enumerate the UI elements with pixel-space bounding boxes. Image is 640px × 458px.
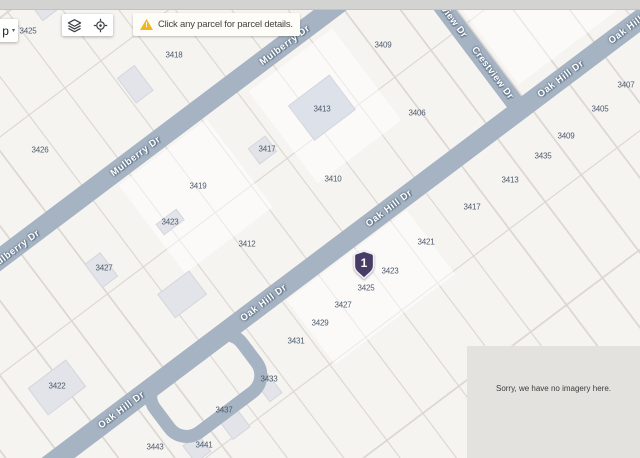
parcel-label-3417[interactable]: 3417 <box>464 203 481 212</box>
parcel-label-3425[interactable]: 3425 <box>20 27 37 36</box>
parcel-label-3419[interactable]: 3419 <box>190 182 207 191</box>
warning-triangle-icon: ! <box>140 19 153 30</box>
chevron-down-icon: ▾ <box>12 27 15 34</box>
parcel-label-3417[interactable]: 3417 <box>259 145 276 154</box>
parcel-label-3423[interactable]: 3423 <box>162 218 179 227</box>
map-type-label: p <box>2 24 9 38</box>
map-viewport: Mulberry DrMulberry DrMulberry DrOak Hil… <box>0 0 640 458</box>
parcel-label-3413[interactable]: 3413 <box>314 105 331 114</box>
parcel-label-3429[interactable]: 3429 <box>312 319 329 328</box>
no-imagery-message: Sorry, we have no imagery here. <box>467 384 640 393</box>
parcel-notice-text: Click any parcel for parcel details. <box>158 19 293 30</box>
road-loop-court <box>133 317 279 454</box>
layers-icon[interactable] <box>67 18 82 33</box>
parcel-label-3425[interactable]: 3425 <box>358 284 375 293</box>
listing-marker-pin[interactable]: 1 <box>352 250 376 281</box>
marker-number: 1 <box>361 256 368 270</box>
building-footprint <box>157 270 207 318</box>
parcel-label-3413[interactable]: 3413 <box>502 176 519 185</box>
no-imagery-panel <box>467 346 640 458</box>
parcel-label-3435[interactable]: 3435 <box>535 152 552 161</box>
top-strip <box>0 0 640 10</box>
locate-icon[interactable] <box>93 18 108 33</box>
parcel-label-3427[interactable]: 3427 <box>335 301 352 310</box>
parcel-label-3423[interactable]: 3423 <box>382 267 399 276</box>
parcel-label-3427[interactable]: 3427 <box>96 264 113 273</box>
parcel-label-3405[interactable]: 3405 <box>592 105 609 114</box>
parcel-label-3409[interactable]: 3409 <box>375 41 392 50</box>
parcel-label-3409[interactable]: 3409 <box>558 132 575 141</box>
map-toolbar <box>62 14 113 36</box>
parcel-label-3443[interactable]: 3443 <box>147 443 164 452</box>
parcel-label-3431[interactable]: 3431 <box>288 337 305 346</box>
parcel-label-3406[interactable]: 3406 <box>409 109 426 118</box>
parcel-label-3437[interactable]: 3437 <box>216 406 233 415</box>
parcel-notice: ! Click any parcel for parcel details. <box>133 13 300 36</box>
parcel-label-3433[interactable]: 3433 <box>261 375 278 384</box>
parcel-label-3422[interactable]: 3422 <box>49 382 66 391</box>
warning-exclamation: ! <box>140 22 153 30</box>
map-type-button[interactable]: p ▾ <box>0 19 18 42</box>
parcel-label-3421[interactable]: 3421 <box>418 238 435 247</box>
parcel-label-3410[interactable]: 3410 <box>325 175 342 184</box>
building-footprint <box>117 65 154 104</box>
parcel-label-3426[interactable]: 3426 <box>32 146 49 155</box>
parcel-label-3418[interactable]: 3418 <box>166 51 183 60</box>
parcel-label-3407[interactable]: 3407 <box>618 81 635 90</box>
parcel-label-3412[interactable]: 3412 <box>239 240 256 249</box>
parcel-label-3441[interactable]: 3441 <box>196 441 213 450</box>
